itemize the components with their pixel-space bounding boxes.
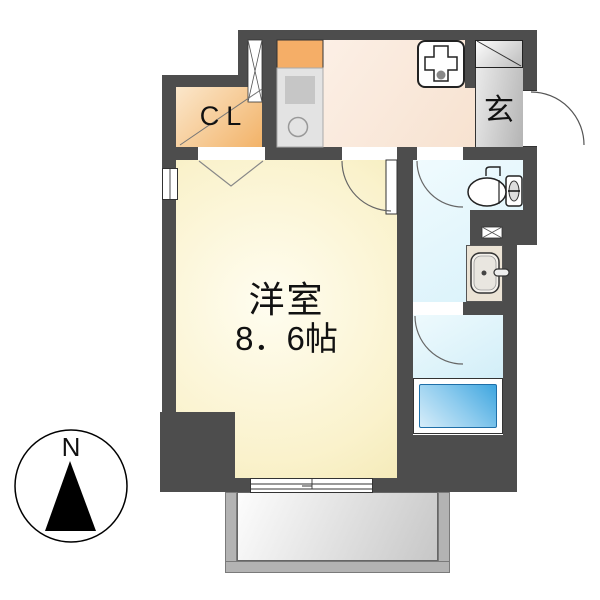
wall-right-lower: [503, 245, 517, 435]
floor-plan: CL 玄 洋室 8．6帖 N: [0, 0, 600, 600]
balcony-floor: [237, 492, 438, 561]
main-room-door-opening: [342, 147, 397, 160]
wall-top: [238, 30, 537, 40]
wall-divider: [397, 160, 413, 435]
bathroom-door-opening: [413, 302, 463, 315]
entrance-label: 玄: [475, 96, 523, 126]
closet-door-opening: [198, 147, 265, 160]
toilet-door-opening: [417, 147, 463, 160]
main-room-name: 洋室: [176, 282, 397, 318]
balcony-window: [250, 478, 373, 493]
wall-mid-b: [265, 147, 342, 160]
main-room-area: 8．6帖: [176, 322, 397, 355]
wall-window-right-stub: [373, 478, 397, 492]
shoe-cabinet: [475, 40, 523, 68]
wall-toilet-bottom: [470, 210, 537, 245]
bathroom-floor: [413, 315, 503, 378]
closet-label: CL: [176, 103, 265, 130]
balcony-wall-bottom: [225, 561, 450, 573]
left-window: [162, 168, 178, 200]
wall-pan-right: [465, 40, 475, 88]
wall-closet-top: [162, 75, 238, 87]
wall-window-left-stub: [235, 478, 250, 492]
bathtub: [419, 384, 497, 428]
washing-machine-pan: [417, 40, 465, 88]
wall-closet-right: [262, 40, 277, 160]
wall-bottom-right-block: [397, 435, 517, 492]
wall-right-upper: [523, 40, 537, 92]
washbasin-counter: [466, 245, 503, 302]
entrance-door: [523, 90, 537, 147]
entrance-door-arc: [531, 92, 584, 145]
compass-north-label: N: [43, 434, 99, 460]
wall-basin-bottom: [463, 302, 503, 315]
wall-mid-c: [397, 147, 417, 160]
wall-topleft-step: [238, 40, 250, 87]
wall-bottom-left-block: [160, 412, 235, 492]
wall-left-lower: [162, 200, 176, 412]
wall-mid-a: [162, 147, 198, 160]
